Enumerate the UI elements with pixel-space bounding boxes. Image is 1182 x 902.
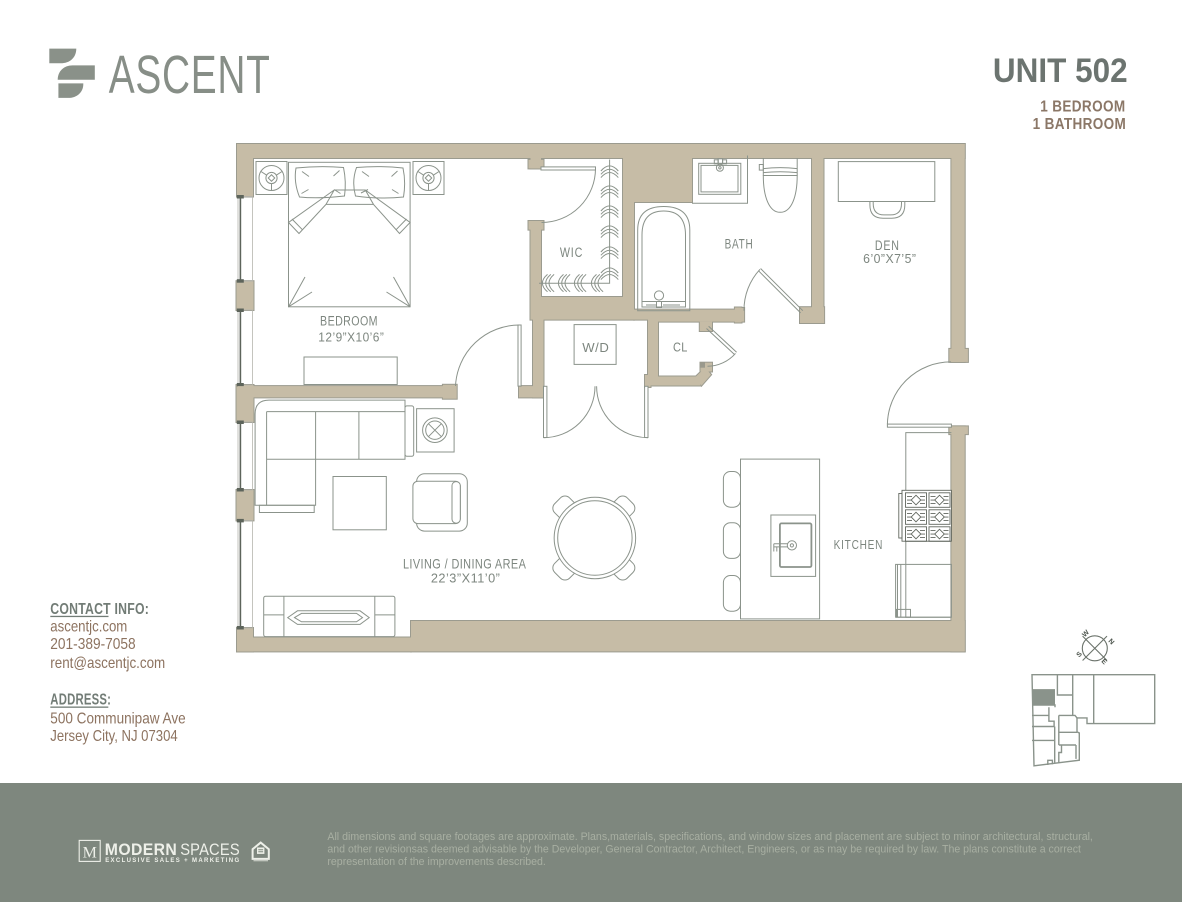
svg-text:500 Communipaw Ave: 500 Communipaw Ave (50, 711, 185, 728)
svg-text:MODERN: MODERN (105, 841, 177, 859)
svg-text:6’0”X7’5”: 6’0”X7’5” (863, 252, 916, 266)
svg-text:W/D: W/D (582, 340, 609, 355)
svg-text:KITCHEN: KITCHEN (834, 538, 884, 553)
svg-text:rent@ascentjc.com: rent@ascentjc.com (50, 655, 165, 672)
svg-text:12’9”X10’6”: 12’9”X10’6” (318, 330, 384, 345)
svg-text:Jersey City, NJ 07304: Jersey City, NJ 07304 (50, 728, 177, 745)
svg-text:UNIT 502: UNIT 502 (993, 51, 1128, 89)
svg-text:22’3”X11’0”: 22’3”X11’0” (431, 570, 501, 585)
svg-text:All dimensions and square foot: All dimensions and square footages are a… (327, 831, 1093, 843)
svg-text:SPACES: SPACES (180, 841, 240, 859)
svg-text:BEDROOM: BEDROOM (320, 313, 378, 329)
svg-text:and other revisionsas deemed a: and other revisionsas deemed advisable b… (327, 844, 1081, 856)
svg-text:LIVING / DINING AREA: LIVING / DINING AREA (403, 556, 527, 571)
svg-text:BATH: BATH (725, 236, 754, 252)
svg-text:WIC: WIC (560, 245, 583, 261)
svg-text:CL: CL (673, 340, 688, 355)
svg-text:representation of the improvem: representation of the improvements descr… (327, 856, 545, 868)
svg-text:ascentjc.com: ascentjc.com (50, 618, 127, 635)
svg-text:M: M (83, 844, 97, 861)
svg-text:ASCENT: ASCENT (109, 45, 271, 105)
svg-text:1 BATHROOM: 1 BATHROOM (1033, 116, 1127, 133)
svg-text:201-389-7058: 201-389-7058 (50, 636, 135, 653)
svg-text:1 BEDROOM: 1 BEDROOM (1040, 99, 1125, 116)
svg-text:N: N (1107, 638, 1116, 647)
svg-text:EXCLUSIVE SALES + MARKETING: EXCLUSIVE SALES + MARKETING (105, 858, 240, 864)
svg-text:CONTACT INFO:: CONTACT INFO: (50, 599, 149, 617)
svg-text:ADDRESS:: ADDRESS: (50, 691, 111, 708)
